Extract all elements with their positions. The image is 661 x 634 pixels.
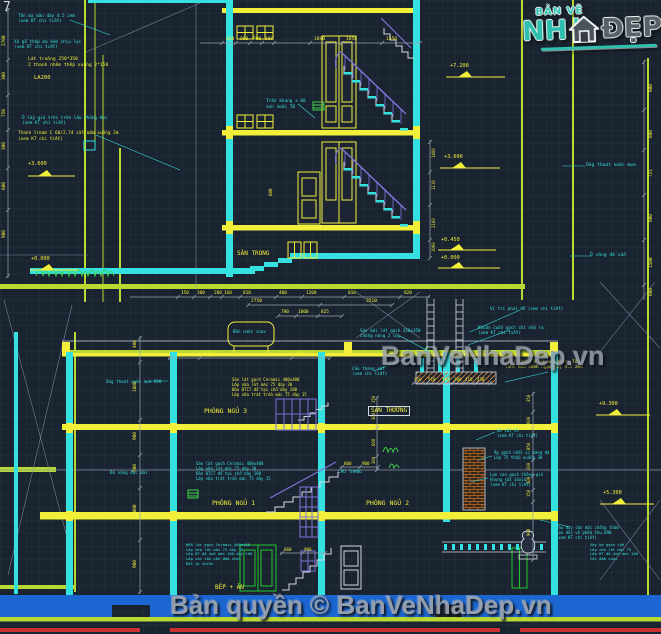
beam-label: LA200 [34, 75, 51, 82]
annotation-text: Sàn mái lát gạch 350x350 chống nóng 2 lớ… [360, 328, 421, 339]
annotation-text: Kẽ sắt V5 (xem KT chi tiết) [497, 428, 538, 438]
level-marker-label: +3.600 [28, 161, 47, 168]
annotation-text: 1000 [298, 310, 309, 316]
level-marker-label: +0.000 [31, 256, 50, 263]
annotation-text: 300 [265, 37, 273, 43]
annotation-text: 510 [428, 377, 436, 382]
annotation-text: 300 [2, 72, 8, 80]
annotation-text: 160 [224, 291, 232, 297]
annotation-text: 430 [477, 377, 485, 382]
annotation-text: Thu đáy sàn mái chống thấm tạo dốc về ph… [556, 525, 619, 540]
annotation-text: 2000 [133, 504, 139, 515]
level-marker-label: +9.300 [599, 401, 618, 408]
annotation-text: 2160 [431, 218, 436, 228]
annotation-text: 1350 [386, 37, 397, 43]
annotation-text: Lát truờng 250*350 2 thanh nhôm thếp xuố… [28, 57, 108, 68]
brand-logo: BẢN VẼ NH ĐẸP [521, 3, 661, 52]
annotation-text: 800 [268, 188, 273, 196]
annotation-text: 820 [404, 291, 412, 297]
annotation-text: 3510 [366, 299, 377, 305]
annotation-text: 850 [526, 443, 531, 450]
annotation-text: 790 [281, 310, 289, 316]
annotation-text: Xà gồ thép mạ kẽm chịu lực (xem KT chi t… [14, 40, 81, 51]
level-marker-label: +0.000 [441, 255, 460, 262]
annotation-text: Vị trí phơi đồ (xem chi tiết) [490, 306, 563, 311]
house-icon [567, 13, 602, 46]
grid-axis-label: 7 [3, 0, 11, 16]
annotation-text: 1400 [431, 148, 436, 158]
room-label-phong-ngu-1: PHÒNG NGỦ 1 [212, 499, 255, 507]
annotation-text: Ô văng đổ sẵn [590, 253, 626, 259]
logo-word-left: NH [522, 14, 568, 47]
annotation-text: 200 [526, 463, 531, 470]
annotation-text: 150 [526, 490, 531, 497]
annotation-text: 900 [649, 214, 655, 222]
annotation-text: Đá vàng đục mài [110, 470, 148, 475]
annotation-text: 1200 [306, 291, 317, 297]
annotation-text: 900 [240, 37, 248, 43]
annotation-text: 1060 [431, 242, 436, 252]
room-label-phong-ngu-3: PHÒNG NGỦ 3 [204, 407, 247, 415]
water-tank-label: Bồn nước inox [233, 329, 266, 334]
annotation-text: 900 [2, 230, 8, 238]
annotation-text: 810 [348, 291, 356, 297]
level-marker-label: +0.450 [441, 237, 460, 244]
center-watermark: BanVeNhaDep.vn [381, 341, 605, 372]
annotation-text: 900 [526, 529, 531, 536]
annotation-text: 350 [526, 395, 531, 402]
annotation-text: 721 [649, 169, 655, 177]
annotation-text: Sàn lát gạch Ceramic 400x400 Lớp vữa lót… [232, 377, 307, 397]
annotation-text: 400 [133, 340, 139, 348]
annotation-text: 600 [649, 288, 655, 296]
annotation-text: 1350 [295, 352, 306, 358]
annotation-text: 900 [362, 461, 370, 466]
annotation-text: Nền lát gạch Ceramic 400x400 Lớp vữa lót… [186, 543, 252, 567]
annotation-text: 300 [371, 457, 376, 464]
cad-canvas[interactable]: 7Tôn mạ màu dày 4.5 zem (xem KT chi tiết… [0, 0, 661, 634]
room-label-phong-ngu-2: PHÒNG NGỦ 2 [366, 499, 409, 507]
annotation-text: 800 [344, 461, 352, 466]
annotation-text: Áp gạch nhồi xi măng đá Lớp 75 thếp xuốn… [494, 450, 549, 460]
annotation-text: 410 [465, 377, 473, 382]
annotation-text: 150 [181, 291, 189, 297]
annotation-text: 900 [253, 37, 261, 43]
annotation-text: Xây bó gạch thẻ Lớp vữa lót mác 75 Lớp B… [590, 543, 638, 562]
room-label-san-thuong: SÂN THƯỜNG [368, 406, 410, 416]
annotation-text: 825 [321, 310, 329, 316]
annotation-text: 900 [649, 84, 655, 92]
annotation-text: 182 [442, 377, 450, 382]
annotation-text: Ô lấy gió trời trên lầu Phòng Hơi (xem K… [22, 116, 107, 127]
annotation-text: 400 [226, 37, 234, 43]
annotation-text: 410 [414, 377, 422, 382]
annotation-text: 860 [284, 547, 292, 552]
room-label-san-trong: SÂN TRONG [237, 250, 270, 258]
annotation-text: 1110 [431, 180, 436, 190]
annotation-text: 900 [133, 560, 139, 568]
annotation-text: Trần khung x 60 sơn nước TB [266, 99, 306, 110]
annotation-text: 300 [454, 377, 462, 382]
annotation-text: 600 [526, 417, 531, 424]
annotation-text: 200 [214, 291, 222, 297]
annotation-text: 300 [2, 142, 8, 150]
level-marker-label: +7.200 [450, 63, 469, 70]
annotation-text: Ống thoát nước mưa D90 [106, 379, 161, 384]
annotation-text: 600 [371, 439, 376, 446]
annotation-text: 300 [197, 291, 205, 297]
annotation-text: 600 [649, 130, 655, 138]
annotation-text: 810 [243, 291, 251, 297]
logo-word-right: ĐẸP [601, 11, 661, 44]
annotation-text: 150 [371, 396, 376, 403]
annotation-text: Thanh lream C 60/2.74 sắt mâm xuống 2m (… [18, 131, 118, 142]
annotation-text: 2360 [202, 352, 213, 358]
annotation-text: 750 [2, 109, 8, 117]
annotation-text: 900 [133, 432, 139, 440]
annotation-text: 900 [304, 547, 312, 552]
annotation-text: 1850 [346, 37, 357, 43]
annotation-text: 400 [279, 291, 287, 297]
annotation-layer: 7Tôn mạ màu dày 4.5 zem (xem KT chi tiết… [0, 0, 661, 634]
level-marker-label: +3.600 [444, 154, 463, 161]
annotation-text: 2700 [2, 35, 8, 46]
annotation-text: Sàn lát gạch Ceramic 400x400 Lớp vữa lót… [196, 461, 271, 481]
footer-copyright: Bản quyền © BanVeNhaDep.vn [170, 590, 552, 621]
annotation-text: Lan can gạch thông gió khung sắt 14x14 (… [490, 472, 543, 487]
level-marker-label: +5.300 [603, 490, 622, 497]
annotation-text: Tôn mạ màu dày 4.5 zem (xem KT chi tiết) [18, 14, 75, 25]
annotation-text: 600 [2, 182, 8, 190]
annotation-text: 1500 [649, 257, 655, 268]
annotation-text: Ống thoát nước mưa [586, 163, 636, 169]
annotation-text: 2750 [251, 299, 262, 305]
annotation-text: Khuôn cuốn gạch chỉ nhô ra (xem KT chi t… [478, 325, 544, 336]
annotation-text: 1890 [314, 37, 325, 43]
annotation-text: CẦU THANG [338, 470, 362, 476]
